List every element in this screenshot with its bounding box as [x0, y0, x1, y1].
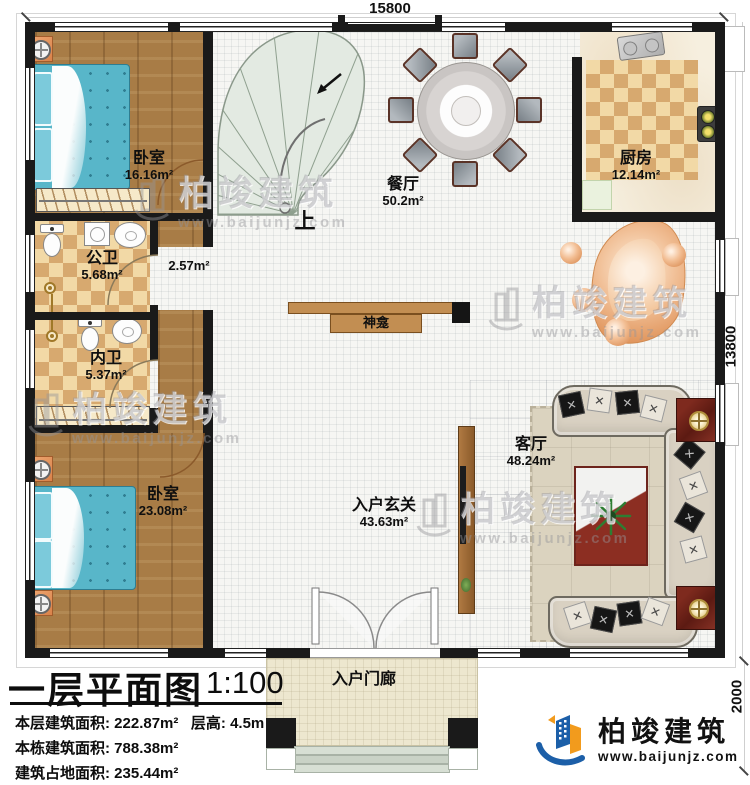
toilet-icon [40, 224, 64, 233]
room-label-foyer: 入户玄关43.63m² [334, 497, 434, 530]
room-label-porch: 入户门廊 [314, 671, 414, 689]
stairs-up-label: 上 [285, 210, 325, 234]
cushion-icon [617, 601, 643, 627]
side-table [676, 586, 720, 630]
door-opening [310, 648, 440, 658]
porch-step-side [266, 748, 296, 770]
shrine-console [288, 302, 470, 314]
tv-icon [460, 466, 466, 544]
burner-icon [701, 110, 715, 124]
porch-step [294, 755, 450, 764]
stat-label: 本栋建筑面积: [15, 740, 110, 757]
brand-block: 柏竣建筑 www.baijunjz.com [534, 712, 739, 770]
window [25, 68, 35, 160]
window [25, 330, 35, 388]
washer-icon [84, 222, 110, 246]
cushion-icon [587, 388, 613, 414]
stat-value: 222.87m² [114, 715, 178, 732]
chair-icon [516, 97, 542, 123]
stat-footprint-area: 建筑占地面积: 235.44m² [15, 762, 178, 783]
decor-sphere [572, 288, 596, 312]
toilet-bowl-icon [81, 327, 99, 351]
decor-sphere [560, 242, 582, 264]
bed-sheet [52, 66, 86, 188]
dim-bracket-tab [338, 15, 345, 24]
window [180, 22, 332, 32]
lamp-icon [689, 599, 709, 619]
wall [203, 22, 213, 247]
kitchen-mat [582, 180, 612, 210]
wall [150, 408, 158, 433]
cushion-icon [558, 391, 585, 418]
spiral-staircase [213, 24, 375, 224]
pillow [33, 128, 53, 182]
window [612, 22, 692, 32]
brand-url: www.baijunjz.com [598, 749, 739, 764]
stat-floor-area: 本层建筑面积: 222.87m² 层高: 4.5m [15, 712, 264, 733]
room-label-dining: 餐厅50.2m² [353, 176, 453, 209]
stat-value: 788.38m² [114, 740, 178, 757]
room-label-public-bath: 公卫5.68m² [52, 250, 152, 283]
wall [25, 312, 158, 320]
wall [25, 213, 213, 221]
window [25, 482, 35, 580]
brand-logo-icon [534, 712, 590, 770]
bed-sheet [52, 488, 84, 588]
dim-bracket [338, 24, 442, 31]
floor-drain-icon [44, 282, 56, 294]
room-label-kitchen: 厨房12.14m² [586, 150, 686, 183]
title-underline [10, 702, 282, 705]
wall [572, 57, 582, 212]
chair-icon [388, 97, 414, 123]
window-sill [725, 383, 739, 446]
cushion-icon [590, 606, 617, 633]
plan-scale: 1:100 [206, 665, 284, 701]
dimension-right: 13800 [723, 322, 740, 372]
decor-sphere [662, 243, 686, 267]
pillow [33, 492, 53, 540]
sink-icon [112, 318, 142, 344]
decor-sphere [604, 318, 632, 346]
window-sill [725, 238, 739, 296]
room-label-corridor: 2.57m² [139, 259, 239, 274]
pillow [33, 540, 53, 588]
side-table [676, 398, 720, 442]
sink-basin-icon [622, 41, 638, 57]
shrine-pillar [452, 302, 470, 323]
stat-label: 层高: [191, 715, 226, 732]
wardrobe [36, 188, 150, 212]
pillow [33, 72, 53, 126]
corridor-wood-b [158, 310, 203, 433]
dining-table-center [451, 96, 481, 126]
window [25, 235, 35, 292]
porch-column [448, 718, 478, 748]
sink-icon [114, 222, 146, 248]
room-label-private-bath: 内卫5.37m² [56, 350, 156, 383]
window [55, 22, 168, 32]
room-label-living: 客厅48.24m² [481, 436, 581, 469]
shrine-label: 神龛 [331, 316, 421, 331]
sink-basin-icon [644, 38, 660, 54]
room-label-bedroom-bottom: 卧室23.08m² [113, 486, 213, 519]
wall [25, 425, 158, 433]
dimension-top: 15800 [352, 0, 428, 17]
dim-line-right [742, 22, 743, 658]
window [715, 240, 725, 292]
dim-bracket-tab [435, 15, 442, 24]
plant-icon [589, 494, 633, 538]
brand-name: 柏竣建筑 [598, 718, 739, 746]
wall [572, 212, 725, 222]
porch-column [266, 718, 296, 748]
porch-step [294, 764, 450, 773]
porch-step-side [448, 748, 478, 770]
window [570, 648, 688, 658]
window [50, 648, 168, 658]
stat-building-area: 本栋建筑面积: 788.38m² [15, 737, 178, 758]
page-title: 一层平面图 [8, 660, 203, 714]
porch-step [294, 746, 450, 755]
burner-icon [701, 125, 715, 139]
window [225, 648, 266, 658]
window [715, 385, 725, 442]
dim-line-top [25, 17, 725, 18]
stat-label: 本层建筑面积: [15, 715, 110, 732]
lamp-icon [689, 411, 709, 431]
chair-icon [452, 161, 478, 187]
tv-plant-icon [461, 578, 471, 592]
stat-value: 4.5m [230, 715, 264, 732]
room-label-bedroom-top: 卧室16.16m² [99, 150, 199, 183]
stat-label: 建筑占地面积: [15, 765, 110, 782]
chair-icon [452, 33, 478, 59]
cushion-icon [615, 390, 640, 415]
stat-value: 235.44m² [114, 765, 178, 782]
floor-drain-icon [46, 330, 58, 342]
window [478, 648, 520, 658]
wall [203, 310, 213, 655]
floor-plan: 柏竣建筑www.baijunjz.com 柏竣建筑www.baijunjz.co… [0, 0, 750, 785]
